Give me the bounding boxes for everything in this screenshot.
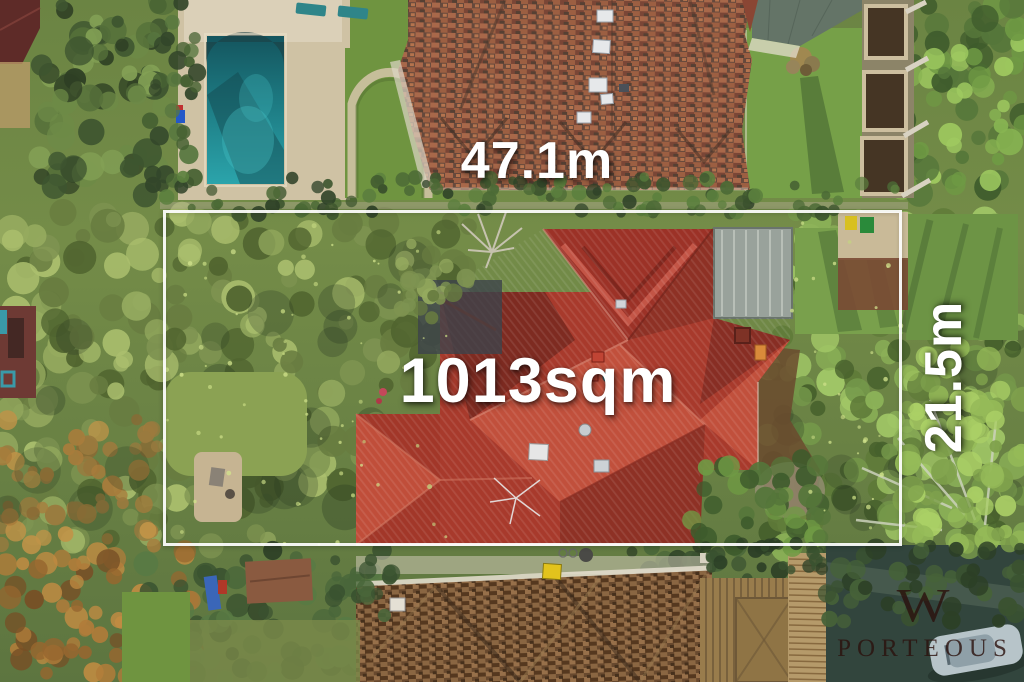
chimney [735, 328, 750, 343]
neighbor-top-lawn-right [745, 28, 869, 198]
yellow-box [542, 563, 561, 579]
skylight [594, 460, 609, 472]
green-bin [860, 217, 874, 233]
frontage-dimension-label: 47.1m [461, 131, 613, 191]
aerial-photo-page: 47.1m 1013sqm 21.5m W PORTEOUS [0, 0, 1024, 682]
aerial-photo [0, 0, 1024, 682]
gravel-patch [194, 452, 242, 522]
dry-lawn [180, 620, 360, 682]
roof-vent [579, 424, 591, 436]
side-dimension-label: 21.5m [914, 301, 974, 453]
carport-roof [714, 228, 792, 318]
yellow-bin [845, 216, 857, 230]
area-label: 1013sqm [400, 345, 677, 417]
skylight [529, 444, 549, 461]
chimney [390, 598, 405, 611]
